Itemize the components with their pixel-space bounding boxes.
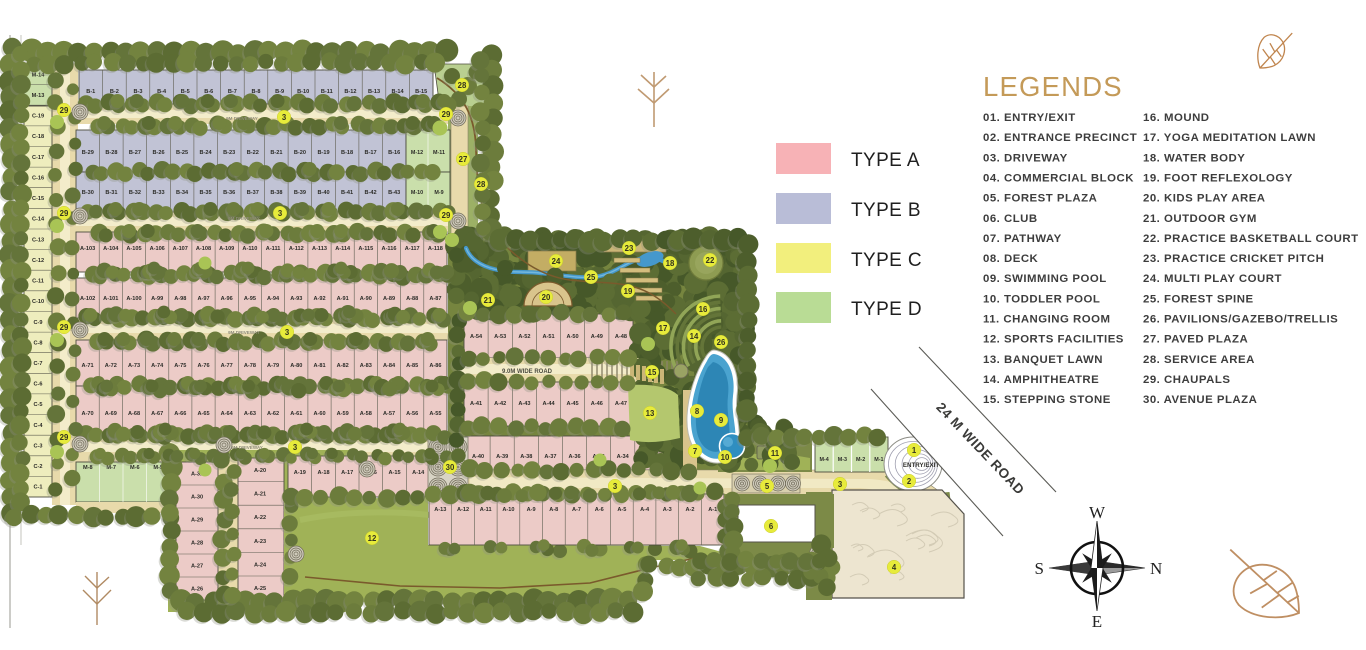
svg-text:12: 12: [368, 534, 377, 543]
svg-text:B-28: B-28: [105, 150, 117, 156]
svg-text:A-59: A-59: [337, 411, 349, 417]
svg-text:A-44: A-44: [542, 401, 555, 407]
svg-text:A-71: A-71: [82, 363, 94, 369]
svg-text:TYPE D: TYPE D: [851, 299, 922, 320]
svg-text:C-7: C-7: [33, 361, 42, 367]
svg-text:A-82: A-82: [337, 363, 349, 369]
svg-text:A-5: A-5: [617, 507, 626, 513]
svg-text:A-102: A-102: [80, 296, 95, 302]
svg-text:M-3: M-3: [838, 457, 847, 463]
svg-text:B-17: B-17: [365, 150, 377, 156]
svg-text:B-13: B-13: [368, 89, 380, 95]
svg-text:ENTRY/EXIT: ENTRY/EXIT: [903, 462, 939, 469]
svg-text:A-88: A-88: [406, 296, 418, 302]
svg-text:A-69: A-69: [105, 411, 117, 417]
svg-text:B-40: B-40: [317, 190, 329, 196]
svg-text:A-117: A-117: [405, 246, 420, 252]
svg-text:A-79: A-79: [267, 363, 279, 369]
svg-text:A-47: A-47: [615, 401, 627, 407]
svg-text:B-35: B-35: [200, 190, 212, 196]
svg-text:B-22: B-22: [247, 150, 259, 156]
svg-text:A-72: A-72: [105, 363, 117, 369]
svg-text:A-99: A-99: [151, 296, 163, 302]
svg-text:18. WATER BODY: 18. WATER BODY: [1143, 152, 1245, 164]
svg-text:10. TODDLER POOL: 10. TODDLER POOL: [983, 293, 1100, 305]
svg-text:26: 26: [717, 338, 726, 347]
svg-text:C-12: C-12: [32, 258, 44, 264]
svg-text:A-61: A-61: [290, 411, 302, 417]
svg-text:23. PRACTICE CRICKET PITCH: 23. PRACTICE CRICKET PITCH: [1143, 253, 1324, 265]
svg-text:9M DRIVEWAY: 9M DRIVEWAY: [231, 445, 263, 450]
svg-text:A-3: A-3: [663, 507, 672, 513]
svg-text:A-52: A-52: [518, 334, 530, 340]
svg-text:A-87: A-87: [429, 296, 441, 302]
svg-text:A-18: A-18: [317, 470, 329, 476]
svg-text:A-34: A-34: [617, 454, 630, 460]
svg-text:A-42: A-42: [494, 401, 506, 407]
svg-text:A-77: A-77: [221, 363, 233, 369]
svg-text:LEGENDS: LEGENDS: [983, 71, 1123, 102]
svg-text:W: W: [1089, 503, 1106, 522]
svg-text:A-63: A-63: [244, 411, 256, 417]
svg-text:TYPE A: TYPE A: [851, 150, 920, 171]
svg-text:27. PAVED PLAZA: 27. PAVED PLAZA: [1143, 334, 1248, 346]
svg-text:M-13: M-13: [32, 93, 45, 99]
svg-text:9M DRIVEWAY: 9M DRIVEWAY: [226, 116, 258, 121]
svg-text:A-57: A-57: [383, 411, 395, 417]
svg-text:3: 3: [278, 209, 283, 218]
svg-text:18: 18: [666, 259, 675, 268]
svg-text:A-45: A-45: [567, 401, 579, 407]
svg-text:A-53: A-53: [494, 334, 506, 340]
svg-text:A-104: A-104: [103, 246, 119, 252]
svg-text:A-56: A-56: [406, 411, 418, 417]
svg-text:A-107: A-107: [173, 246, 188, 252]
svg-text:E: E: [1092, 612, 1102, 631]
svg-text:A-36: A-36: [568, 454, 580, 460]
svg-text:10: 10: [721, 453, 730, 462]
svg-text:A-38: A-38: [520, 454, 532, 460]
svg-text:29: 29: [442, 211, 451, 220]
svg-text:29: 29: [60, 323, 69, 332]
svg-text:B-12: B-12: [344, 89, 356, 95]
svg-text:14: 14: [690, 332, 699, 341]
svg-text:13: 13: [646, 409, 655, 418]
svg-text:C-15: C-15: [32, 196, 44, 202]
svg-text:A-29: A-29: [191, 518, 203, 524]
svg-text:A-114: A-114: [335, 246, 351, 252]
svg-text:29: 29: [60, 433, 69, 442]
svg-text:A-83: A-83: [360, 363, 372, 369]
svg-text:M-2: M-2: [856, 457, 865, 463]
svg-text:19. FOOT REFLEXOLOGY: 19. FOOT REFLEXOLOGY: [1143, 172, 1293, 184]
svg-text:B-37: B-37: [247, 190, 259, 196]
svg-text:A-14: A-14: [412, 470, 425, 476]
svg-text:A-113: A-113: [312, 246, 327, 252]
svg-text:A-115: A-115: [358, 246, 373, 252]
svg-text:M-12: M-12: [411, 150, 423, 156]
svg-text:3: 3: [838, 480, 843, 489]
svg-text:A-94: A-94: [267, 296, 280, 302]
svg-text:A-80: A-80: [290, 363, 302, 369]
svg-text:A-15: A-15: [388, 470, 400, 476]
svg-text:A-19: A-19: [294, 470, 306, 476]
svg-text:B-32: B-32: [129, 190, 141, 196]
svg-text:A-81: A-81: [313, 363, 325, 369]
svg-text:A-6: A-6: [595, 507, 604, 513]
svg-text:A-40: A-40: [472, 454, 484, 460]
svg-text:08. DECK: 08. DECK: [983, 253, 1039, 265]
svg-text:01. ENTRY/EXIT: 01. ENTRY/EXIT: [983, 112, 1076, 124]
svg-text:B-19: B-19: [317, 150, 329, 156]
svg-text:A-24: A-24: [254, 562, 267, 568]
svg-text:06. CLUB: 06. CLUB: [983, 213, 1038, 225]
svg-text:A-93: A-93: [290, 296, 302, 302]
svg-text:B-20: B-20: [294, 150, 306, 156]
svg-text:6: 6: [769, 522, 774, 531]
svg-text:30: 30: [446, 463, 455, 472]
svg-text:09. SWIMMING POOL: 09. SWIMMING POOL: [983, 273, 1107, 285]
svg-text:B-1: B-1: [86, 89, 95, 95]
svg-text:20. KIDS PLAY AREA: 20. KIDS PLAY AREA: [1143, 193, 1266, 205]
svg-text:TYPE C: TYPE C: [851, 250, 922, 271]
svg-text:B-15: B-15: [415, 89, 427, 95]
svg-text:1: 1: [912, 446, 917, 455]
svg-text:22. PRACTICE BASKETBALL COURT: 22. PRACTICE BASKETBALL COURT: [1143, 233, 1359, 245]
svg-text:15. STEPPING STONE: 15. STEPPING STONE: [983, 394, 1111, 406]
svg-text:M-1: M-1: [874, 457, 883, 463]
svg-text:A-109: A-109: [219, 246, 234, 252]
svg-text:A-86: A-86: [429, 363, 441, 369]
svg-text:A-13: A-13: [434, 507, 446, 513]
svg-text:A-112: A-112: [289, 246, 304, 252]
svg-text:B-29: B-29: [82, 150, 94, 156]
svg-text:07. PATHWAY: 07. PATHWAY: [983, 233, 1062, 245]
svg-text:C-18: C-18: [32, 134, 44, 140]
svg-text:C-1: C-1: [33, 485, 42, 491]
svg-text:15: 15: [648, 368, 657, 377]
svg-text:B-24: B-24: [200, 150, 213, 156]
svg-text:B-18: B-18: [341, 150, 353, 156]
svg-text:A-101: A-101: [103, 296, 118, 302]
svg-text:20: 20: [542, 293, 551, 302]
svg-text:TYPE B: TYPE B: [851, 200, 921, 221]
svg-text:M-8: M-8: [83, 465, 93, 471]
svg-text:B-23: B-23: [223, 150, 235, 156]
svg-text:A-11: A-11: [480, 507, 492, 513]
svg-text:C-17: C-17: [32, 155, 44, 161]
svg-text:A-106: A-106: [150, 246, 165, 252]
svg-text:M-6: M-6: [130, 465, 140, 471]
svg-text:A-41: A-41: [470, 401, 482, 407]
svg-text:A-50: A-50: [567, 334, 579, 340]
svg-text:M-4: M-4: [819, 457, 828, 463]
svg-text:B-21: B-21: [270, 150, 282, 156]
svg-text:B-3: B-3: [133, 89, 142, 95]
svg-text:13. BANQUET LAWN: 13. BANQUET LAWN: [983, 354, 1103, 366]
svg-text:27: 27: [459, 155, 468, 164]
svg-text:A-9: A-9: [527, 507, 536, 513]
svg-text:A-28: A-28: [191, 541, 203, 547]
svg-text:A-100: A-100: [126, 296, 141, 302]
svg-text:B-25: B-25: [176, 150, 188, 156]
svg-text:3: 3: [293, 443, 298, 452]
svg-text:A-54: A-54: [470, 334, 483, 340]
svg-text:A-90: A-90: [360, 296, 372, 302]
svg-text:B-38: B-38: [270, 190, 282, 196]
svg-text:B-42: B-42: [365, 190, 377, 196]
svg-text:A-98: A-98: [174, 296, 186, 302]
svg-text:A-75: A-75: [174, 363, 186, 369]
svg-text:B-27: B-27: [129, 150, 141, 156]
svg-text:17. YOGA MEDITATION LAWN: 17. YOGA MEDITATION LAWN: [1143, 132, 1316, 144]
svg-text:9M DRIVEWAY: 9M DRIVEWAY: [228, 216, 260, 221]
svg-text:16. MOUND: 16. MOUND: [1143, 112, 1210, 124]
svg-text:A-105: A-105: [126, 246, 141, 252]
svg-text:26. PAVILIONS/GAZEBO/TRELLIS: 26. PAVILIONS/GAZEBO/TRELLIS: [1143, 314, 1338, 326]
svg-text:C-9: C-9: [33, 320, 42, 326]
svg-text:A-21: A-21: [254, 492, 266, 498]
svg-text:A-95: A-95: [244, 296, 256, 302]
svg-text:A-84: A-84: [383, 363, 396, 369]
svg-text:A-64: A-64: [221, 411, 234, 417]
svg-text:N: N: [1150, 559, 1162, 578]
svg-text:05. FOREST PLAZA: 05. FOREST PLAZA: [983, 193, 1097, 205]
svg-text:12. SPORTS FACILITIES: 12. SPORTS FACILITIES: [983, 334, 1124, 346]
svg-text:A-89: A-89: [383, 296, 395, 302]
svg-text:3: 3: [282, 113, 287, 122]
svg-text:A-10: A-10: [502, 507, 514, 513]
svg-text:C-11: C-11: [32, 279, 44, 285]
svg-text:A-39: A-39: [496, 454, 508, 460]
svg-text:A-110: A-110: [242, 246, 257, 252]
svg-text:9M DRIVEWAY: 9M DRIVEWAY: [228, 330, 260, 335]
svg-text:04. COMMERCIAL BLOCK: 04. COMMERCIAL BLOCK: [983, 172, 1134, 184]
svg-text:5: 5: [765, 482, 770, 491]
svg-text:A-96: A-96: [221, 296, 233, 302]
svg-text:A-17: A-17: [341, 470, 353, 476]
svg-text:B-43: B-43: [388, 190, 400, 196]
svg-text:A-118: A-118: [428, 246, 443, 252]
svg-text:A-22: A-22: [254, 515, 266, 521]
svg-text:C-5: C-5: [33, 402, 42, 408]
svg-text:C-10: C-10: [32, 299, 44, 305]
svg-text:29: 29: [60, 209, 69, 218]
svg-text:C-4: C-4: [33, 423, 43, 429]
svg-text:C-8: C-8: [33, 340, 42, 346]
svg-text:A-46: A-46: [591, 401, 603, 407]
svg-text:19: 19: [624, 287, 633, 296]
svg-text:25. FOREST SPINE: 25. FOREST SPINE: [1143, 293, 1254, 305]
svg-text:A-62: A-62: [267, 411, 279, 417]
svg-text:B-33: B-33: [152, 190, 164, 196]
svg-text:S: S: [1035, 559, 1044, 578]
svg-text:A-7: A-7: [572, 507, 581, 513]
svg-text:A-97: A-97: [197, 296, 209, 302]
svg-text:21. OUTDOOR GYM: 21. OUTDOOR GYM: [1143, 213, 1257, 225]
svg-text:3: 3: [613, 482, 618, 491]
svg-text:02. ENTRANCE PRECINCT: 02. ENTRANCE PRECINCT: [983, 132, 1137, 144]
svg-text:29: 29: [60, 106, 69, 115]
svg-text:16: 16: [699, 305, 708, 314]
svg-text:B-41: B-41: [341, 190, 353, 196]
svg-text:A-116: A-116: [382, 246, 397, 252]
svg-text:3: 3: [285, 328, 290, 337]
svg-text:11. CHANGING ROOM: 11. CHANGING ROOM: [983, 314, 1110, 326]
svg-text:22: 22: [706, 256, 715, 265]
svg-text:A-70: A-70: [82, 411, 94, 417]
svg-text:25: 25: [587, 273, 596, 282]
svg-text:B-34: B-34: [176, 190, 189, 196]
svg-text:A-65: A-65: [197, 411, 209, 417]
svg-text:A-60: A-60: [313, 411, 325, 417]
svg-text:B-30: B-30: [82, 190, 94, 196]
svg-text:9: 9: [719, 416, 724, 425]
svg-text:A-20: A-20: [254, 468, 266, 474]
svg-text:B-31: B-31: [105, 190, 117, 196]
svg-text:C-2: C-2: [33, 464, 42, 470]
svg-text:A-25: A-25: [254, 586, 266, 592]
svg-text:A-74: A-74: [151, 363, 164, 369]
svg-text:A-8: A-8: [549, 507, 558, 513]
svg-text:A-43: A-43: [518, 401, 530, 407]
svg-text:28: 28: [477, 180, 486, 189]
svg-text:A-51: A-51: [542, 334, 554, 340]
svg-text:C-19: C-19: [32, 114, 44, 120]
svg-text:A-76: A-76: [197, 363, 209, 369]
svg-text:B-26: B-26: [152, 150, 164, 156]
svg-text:A-58: A-58: [360, 411, 372, 417]
svg-text:A-67: A-67: [151, 411, 163, 417]
svg-text:A-27: A-27: [191, 564, 203, 570]
svg-text:9.0M WIDE ROAD: 9.0M WIDE ROAD: [502, 369, 553, 375]
svg-text:C-14: C-14: [32, 217, 45, 223]
svg-text:M-11: M-11: [433, 150, 445, 156]
svg-text:17: 17: [659, 324, 668, 333]
svg-text:4: 4: [892, 563, 897, 572]
svg-text:A-55: A-55: [429, 411, 441, 417]
svg-text:A-68: A-68: [128, 411, 140, 417]
svg-text:24. MULTI PLAY COURT: 24. MULTI PLAY COURT: [1143, 273, 1282, 285]
svg-text:A-2: A-2: [685, 507, 694, 513]
svg-text:B-7: B-7: [228, 89, 237, 95]
svg-text:2: 2: [907, 477, 912, 486]
svg-text:A-12: A-12: [457, 507, 469, 513]
svg-text:30. AVENUE PLAZA: 30. AVENUE PLAZA: [1143, 394, 1257, 406]
svg-text:C-3: C-3: [33, 444, 42, 450]
svg-text:M-10: M-10: [411, 190, 423, 196]
svg-text:B-39: B-39: [294, 190, 306, 196]
svg-text:23: 23: [625, 244, 634, 253]
svg-text:B-16: B-16: [388, 150, 400, 156]
svg-text:C-13: C-13: [32, 237, 44, 243]
svg-text:14. AMPHITHEATRE: 14. AMPHITHEATRE: [983, 374, 1099, 386]
svg-text:M-9: M-9: [434, 190, 443, 196]
svg-text:28. SERVICE AREA: 28. SERVICE AREA: [1143, 354, 1255, 366]
svg-text:C-6: C-6: [33, 382, 42, 388]
svg-text:A-4: A-4: [640, 507, 650, 513]
svg-text:A-85: A-85: [406, 363, 418, 369]
svg-text:A-78: A-78: [244, 363, 256, 369]
svg-text:C-16: C-16: [32, 175, 44, 181]
svg-text:A-23: A-23: [254, 539, 266, 545]
svg-text:8: 8: [695, 407, 700, 416]
svg-text:A-26: A-26: [191, 587, 203, 593]
svg-text:A-111: A-111: [266, 246, 281, 252]
svg-text:A-30: A-30: [191, 495, 203, 501]
svg-text:A-48: A-48: [615, 334, 627, 340]
svg-text:7: 7: [693, 447, 697, 456]
svg-text:29. CHAUPALS: 29. CHAUPALS: [1143, 374, 1230, 386]
svg-text:A-73: A-73: [128, 363, 140, 369]
svg-text:A-108: A-108: [196, 246, 211, 252]
svg-text:A-66: A-66: [174, 411, 186, 417]
svg-text:03. DRIVEWAY: 03. DRIVEWAY: [983, 152, 1068, 164]
svg-text:28: 28: [458, 81, 467, 90]
svg-text:29: 29: [442, 110, 451, 119]
svg-text:11: 11: [771, 449, 780, 458]
svg-text:A-92: A-92: [313, 296, 325, 302]
svg-text:B-36: B-36: [223, 190, 235, 196]
svg-text:A-37: A-37: [544, 454, 556, 460]
svg-text:A-49: A-49: [591, 334, 603, 340]
svg-text:24: 24: [552, 257, 561, 266]
svg-text:A-91: A-91: [337, 296, 349, 302]
svg-text:A-103: A-103: [80, 246, 95, 252]
svg-text:21: 21: [484, 296, 493, 305]
